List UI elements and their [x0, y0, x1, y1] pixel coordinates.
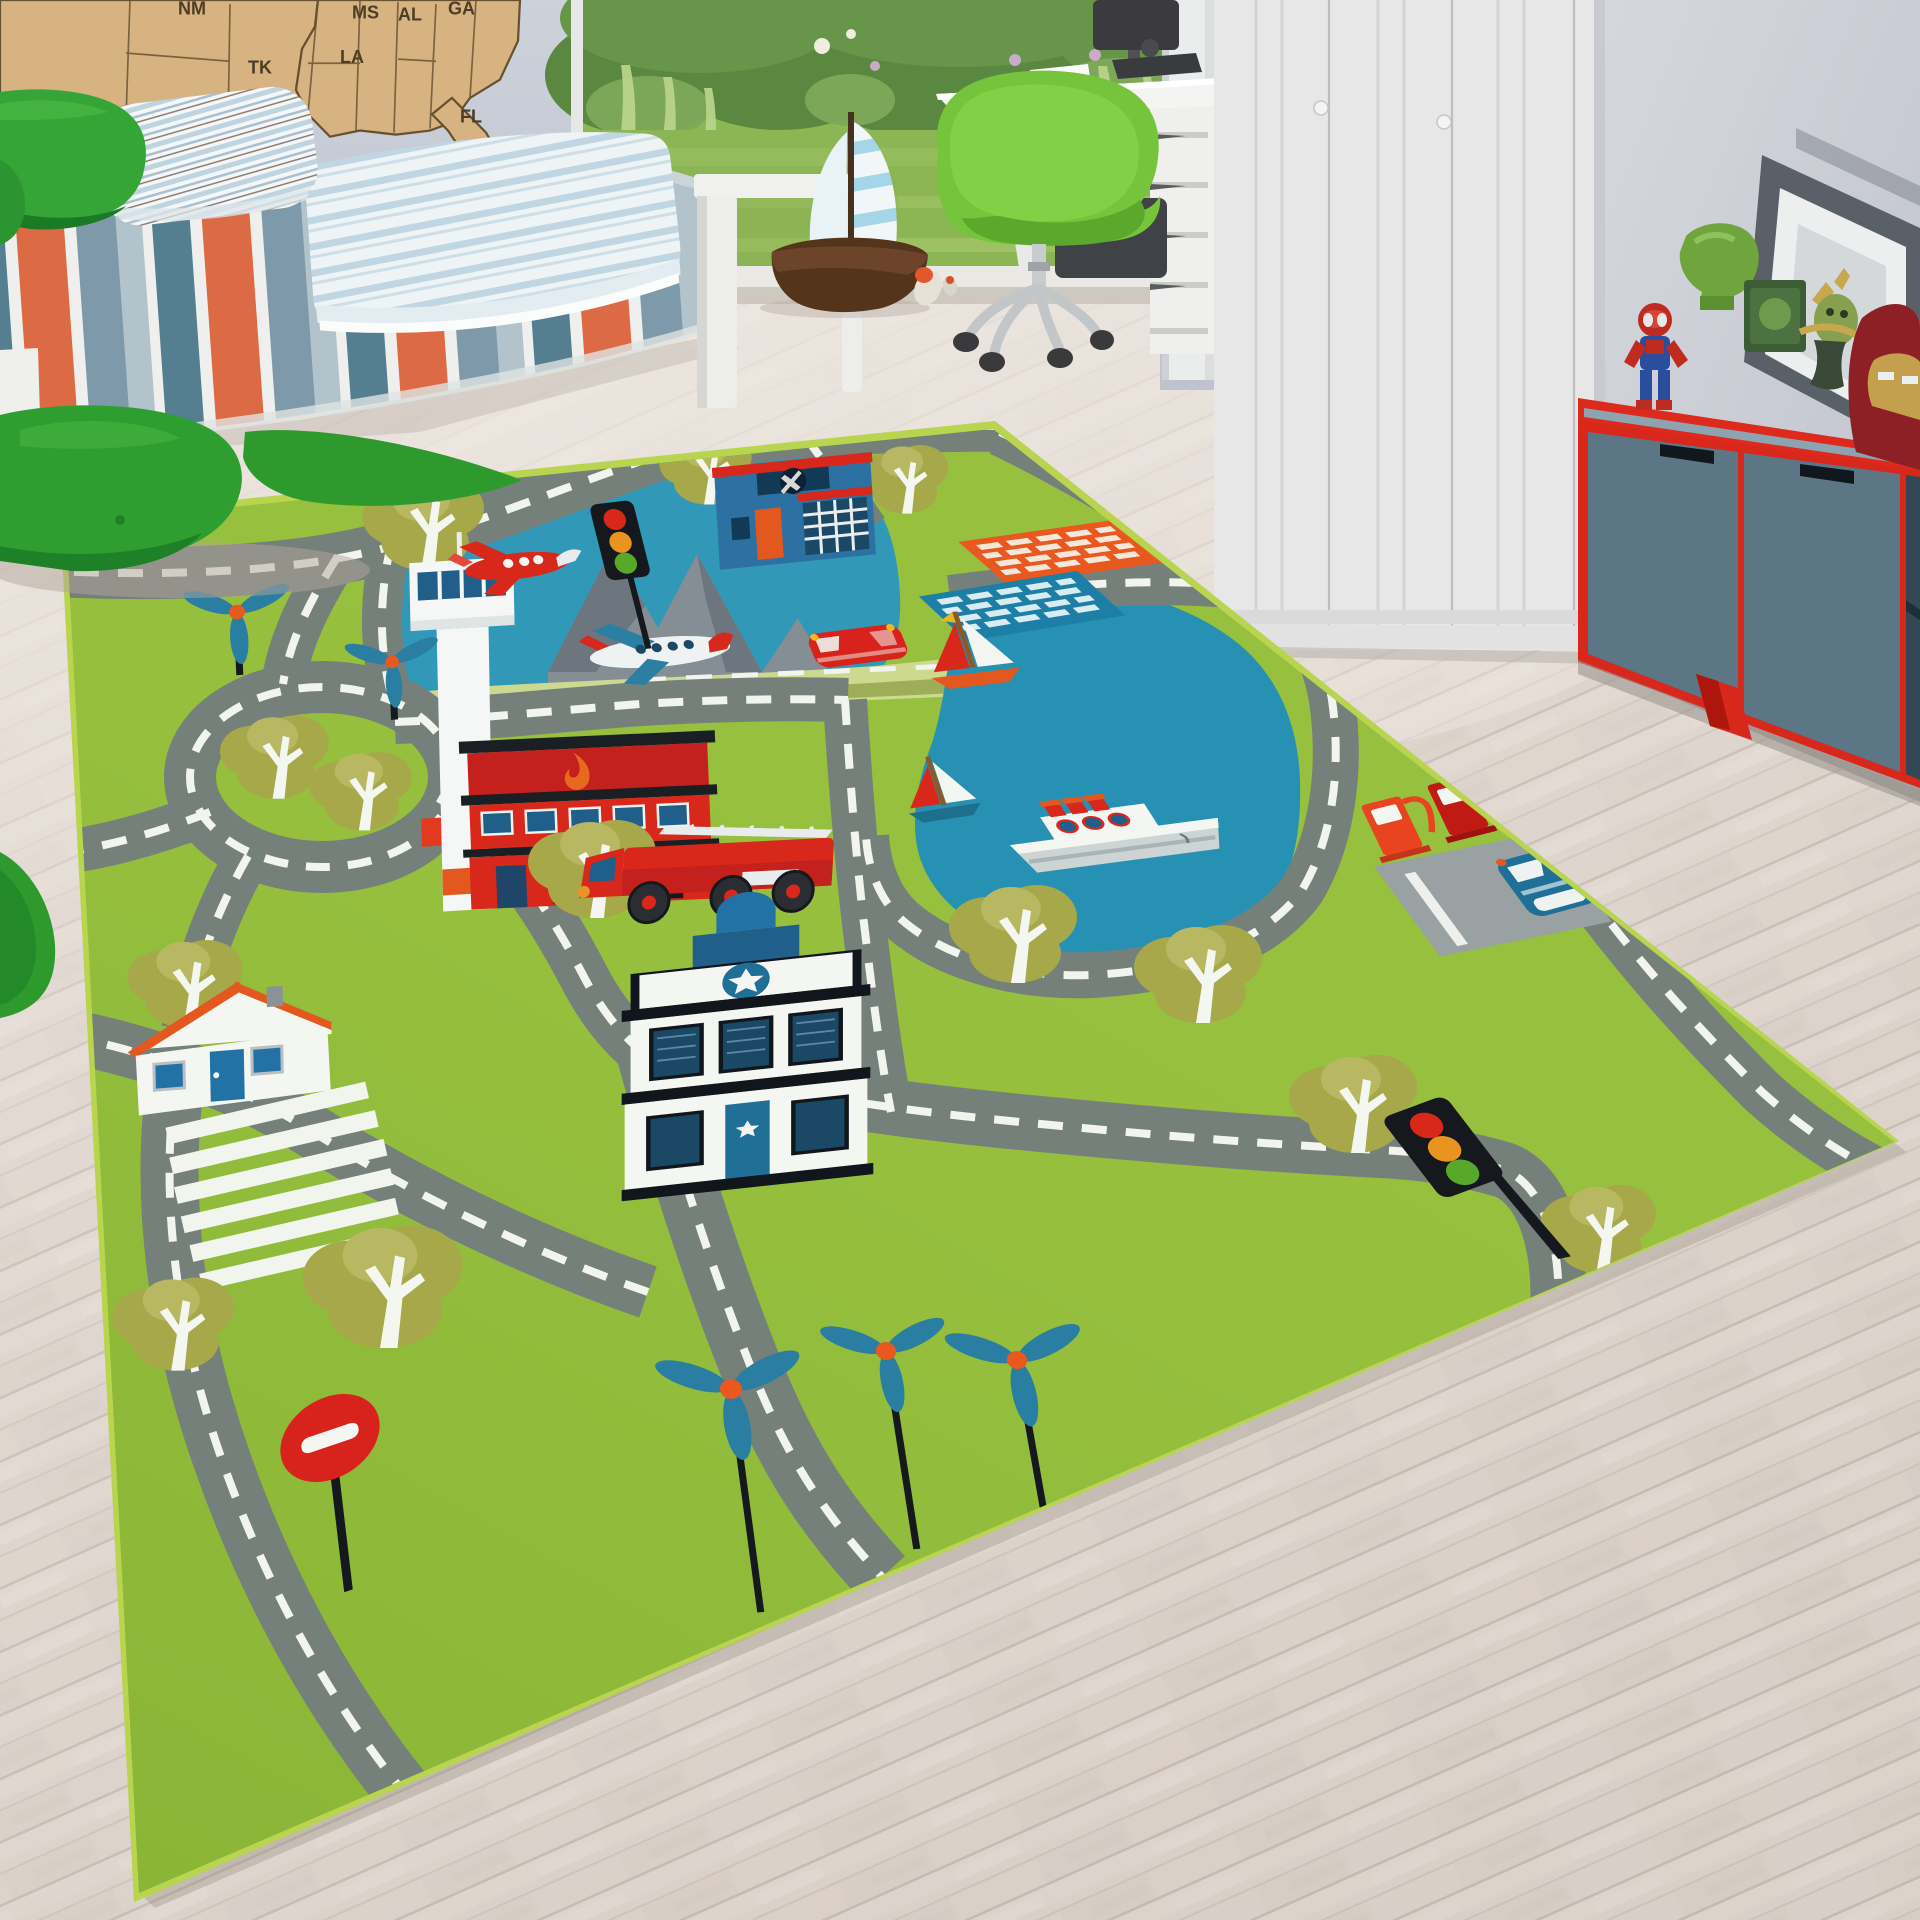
svg-text:FL: FL	[460, 106, 482, 126]
svg-text:GA: GA	[448, 0, 475, 18]
svg-text:TK: TK	[248, 57, 272, 77]
svg-text:MS: MS	[352, 2, 379, 22]
svg-text:NM: NM	[178, 0, 206, 18]
svg-text:AL: AL	[398, 4, 422, 24]
svg-text:LA: LA	[340, 47, 364, 67]
